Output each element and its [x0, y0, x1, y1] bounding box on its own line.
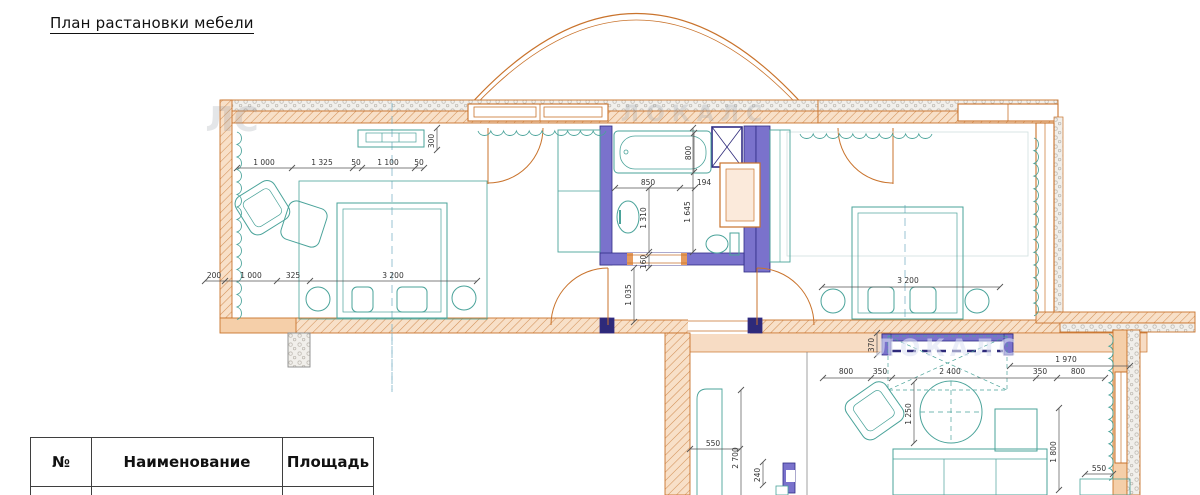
balcony-door-left	[488, 128, 543, 184]
dimension-label: 3 200	[897, 276, 919, 285]
dimension-label: 1 310	[639, 207, 648, 229]
dimension-label: 2 700	[731, 447, 740, 469]
dimension-label: 350	[1033, 367, 1048, 376]
balcony-door-right	[838, 128, 893, 184]
legend-header-row: № Наименование Площадь	[31, 438, 374, 487]
dimension-label: 200	[207, 271, 222, 280]
dimension-label: 1 000	[240, 271, 262, 280]
bath-wall-left	[600, 126, 612, 265]
nightstand	[821, 289, 845, 313]
dimension-label: 3 200	[382, 271, 404, 280]
dimension-label: 550	[706, 439, 721, 448]
pillow	[352, 287, 373, 312]
dimension-label: 325	[286, 271, 301, 280]
dimension-label: 240	[753, 468, 762, 483]
balcony-window	[468, 104, 608, 121]
pillar	[288, 333, 310, 367]
dimension-label: 550	[1092, 464, 1107, 473]
dimension-label: 300	[427, 134, 436, 149]
rug-1	[299, 181, 487, 319]
door-bedroom2	[757, 268, 814, 325]
dimension-label: 1 100	[377, 158, 399, 167]
bed-2	[852, 207, 963, 319]
wardrobe-1	[558, 130, 600, 252]
side-table	[995, 409, 1037, 451]
dimension-label: 2 400	[939, 367, 961, 376]
curtain-left	[237, 132, 242, 320]
col-number: №	[31, 438, 92, 487]
tv-stand	[358, 130, 424, 147]
armchair-3	[842, 378, 908, 443]
dimension-label: 800	[1071, 367, 1086, 376]
toilet	[706, 233, 739, 255]
dimension-label: 800	[839, 367, 854, 376]
dimension-label: 50	[351, 158, 361, 167]
dimension-label: 1 000	[253, 158, 275, 167]
col-area: Площадь	[283, 438, 374, 487]
dimension-label: 1 970	[1055, 355, 1077, 364]
dimension-label: 194	[697, 178, 712, 187]
armchair-2	[279, 199, 329, 249]
dimension-label: 850	[641, 178, 656, 187]
dimension-label: 350	[873, 367, 888, 376]
dimension-label: 50	[414, 158, 424, 167]
pillow	[910, 287, 936, 313]
legend-row	[31, 487, 374, 495]
sofa	[893, 449, 1047, 495]
dimension-label: 800	[684, 146, 693, 161]
nightstand	[965, 289, 989, 313]
watermark-left: ЛС	[205, 100, 258, 140]
nightstand	[452, 286, 476, 310]
door-bedroom1	[551, 268, 608, 325]
pillow	[868, 287, 894, 313]
dimension-label: 1 325	[311, 158, 333, 167]
col-name: Наименование	[92, 438, 283, 487]
dimension-label: 160	[639, 255, 648, 270]
curtain-balcony-right	[800, 134, 932, 139]
dimension-label: 1 035	[624, 284, 633, 306]
pillow	[397, 287, 427, 312]
curtain-living	[1109, 334, 1113, 480]
floor-plan: 1 0001 325501 100502001 0003253 20030080…	[0, 0, 1200, 495]
legend-table: № Наименование Площадь	[30, 437, 374, 495]
bedroom2-furniture	[770, 130, 1028, 319]
dimension-label: 1 250	[904, 403, 913, 425]
nightstand	[306, 287, 330, 311]
curtain-balcony-left	[478, 131, 606, 136]
watermark-top: ЛОКАЛС	[621, 102, 769, 127]
dimension-labels: 1 0001 325501 100502001 0003253 20030080…	[207, 134, 1107, 483]
dimension-label: 1 800	[1049, 441, 1058, 463]
watermark-bottom: ЛОКАЛС	[875, 334, 1021, 362]
dimension-label: 1 645	[683, 201, 692, 223]
floor-plan-page: План растановки мебели	[0, 0, 1200, 495]
